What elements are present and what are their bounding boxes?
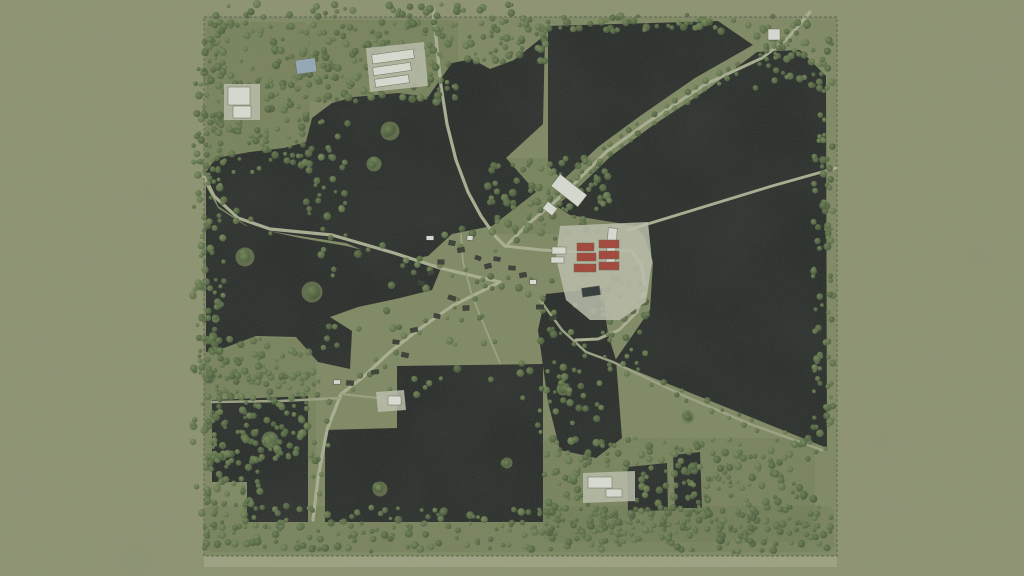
map-preview-image	[0, 0, 1024, 576]
map-overview-svg	[0, 0, 1024, 576]
fine-noise	[0, 0, 1024, 576]
texture-overlay-layer	[0, 0, 1024, 576]
